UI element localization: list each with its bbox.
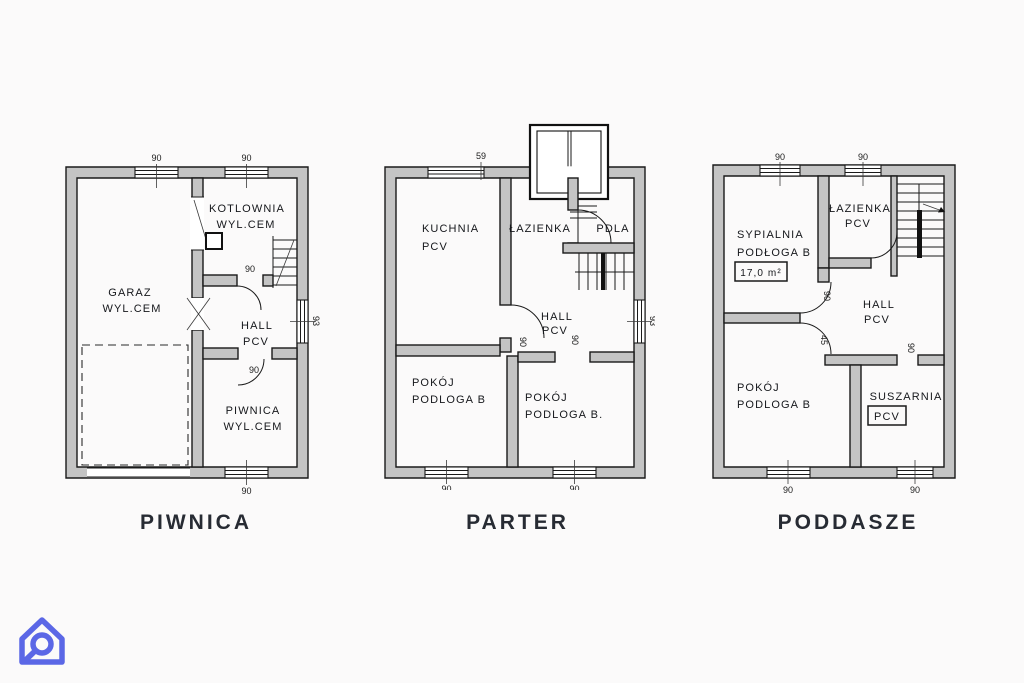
interior-wall [918,355,944,365]
boiler-symbol [206,233,222,249]
interior-wall [590,352,634,362]
room-label: PCV [845,218,871,230]
room-suszarnia: SUSZARNIA PCV [868,391,942,425]
room-sypialnia: SYPIALNIA PODŁOGA B 17,0 m² [735,229,811,281]
window: 90 [760,152,800,186]
interior-wall [850,365,861,467]
door-suszarnia: 90 [906,343,916,353]
svg-text:90: 90 [518,337,528,347]
floorplan-ground: 90 90 59 90 90 [380,110,655,490]
room-label: POKÓJ [412,376,455,389]
window: 90 [225,460,268,495]
room-kotlownia: KOTLOWNIA WYL.CEM [209,203,285,231]
room-label: WYL.CEM [102,303,161,315]
room-pokoj-left: POKÓJ PODLOGA B [412,376,486,406]
door-kotlownia: 90 [237,264,261,310]
room-label: PCV [243,336,269,348]
room-label: PCV [864,314,890,326]
room-label: PODLOGA B. [525,409,603,421]
stairs [273,236,297,288]
window: 93 [627,300,655,343]
svg-text:90: 90 [858,152,868,162]
room-label: POKÓJ [525,391,568,404]
floor-title-poddasze: PODDASZE [718,511,978,535]
door-piwnica: 90 [238,359,264,385]
stair-rail [601,253,605,290]
room-label: PIWNICA [226,405,281,417]
window: 90 [767,460,810,495]
svg-text:90: 90 [783,485,793,495]
interior-wall [518,352,555,362]
door-hall: 90 [511,305,544,347]
svg-text:90: 90 [441,484,451,490]
window-dim: 90 [241,153,251,163]
room-label: KOTLOWNIA [209,203,285,215]
room-pokoj: POKÓJ PODLOGA B [737,381,811,411]
interior-wall [818,268,829,282]
interior-wall [192,330,203,467]
interior-wall [203,348,238,359]
window: 90 [135,153,178,188]
room-label: PODŁOGA B [737,247,811,259]
window: 90 [553,460,596,490]
window-dim: 90 [241,486,251,495]
house-logo-icon [12,610,72,674]
room-label: ŁAZIENKA [509,223,571,235]
interior-wall [272,348,297,359]
room-label: POKÓJ [737,381,780,394]
room-label: PODLOGA B [412,394,486,406]
svg-text:90: 90 [245,264,255,274]
svg-text:90: 90 [906,343,916,353]
room-label: HALL [863,299,895,311]
svg-text:45: 45 [819,335,829,345]
svg-text:90: 90 [569,484,579,490]
interior-wall [500,178,511,305]
room-label: HALL [241,320,273,332]
room-label: HALL [541,311,573,323]
dim-top: 59 [476,151,486,161]
room-label: GARAZ [108,287,151,299]
interior-wall [818,176,829,268]
floorplan-attic: 90 45 90 90 90 90 [705,150,965,495]
door-garage-hall [187,298,210,330]
svg-text:90: 90 [910,485,920,495]
room-piwnica: PIWNICA WYL.CEM [223,405,282,433]
stairs [575,253,634,290]
room-label: WYL.CEM [216,219,275,231]
floor-title-parter: PARTER [380,511,655,535]
window: 93 [290,300,320,343]
room-lazienka: ŁAZIENKA PDLA [509,223,630,235]
floorplan-basement: 90 90 90 93 90 [60,140,320,495]
svg-text:93: 93 [648,316,655,326]
interior-wall [507,356,518,467]
room-label: ŁAZIENKA [829,203,891,215]
interior-wall [891,176,897,276]
interior-wall [203,275,237,286]
room-hall: HALL PCV [241,320,273,348]
svg-text:90: 90 [249,365,259,375]
door-pokoj: 45 [800,323,831,354]
room-label: PCV [542,325,568,337]
stairs [897,184,945,258]
room-kuchnia: KUCHNIA PCV [422,223,479,253]
interior-wall [724,313,800,323]
room-label: PCV [874,411,900,423]
room-label: PDLA [596,223,629,235]
room-hall: HALL PCV [863,299,895,326]
room-label: SUSZARNIA [870,391,943,403]
svg-text:90: 90 [775,152,785,162]
room-hall: HALL PCV [541,311,573,337]
floorplan-sheet: 90 90 90 93 90 [0,0,1024,683]
garage-gate [87,468,190,478]
interior-wall [500,338,511,352]
window-dim: 90 [151,153,161,163]
window-dim: 93 [311,316,320,326]
room-label: KUCHNIA [422,223,479,235]
room-label: SYPIALNIA [737,229,804,241]
window: 90 [897,460,933,495]
interior-wall [263,275,273,286]
interior-wall [563,243,634,253]
area-label: 17,0 m² [740,268,782,279]
interior-wall [396,345,500,356]
interior-wall [829,258,871,268]
door-sypialnia: 90 [800,282,832,313]
garage-dashed-area [82,345,188,465]
room-garaz: GARAZ WYL.CEM [102,287,161,315]
window: 59 [428,151,486,180]
svg-text:90: 90 [822,291,832,301]
door-pokoj-right: 90 [570,335,580,345]
room-label: PODLOGA B [737,399,811,411]
window: 90 [845,152,881,186]
interior-wall [825,355,897,365]
svg-text:90: 90 [570,335,580,345]
window: 90 [225,153,268,188]
room-label: PCV [422,241,448,253]
room-pokoj-right: POKÓJ PODLOGA B. [525,391,603,421]
window: 90 [425,460,468,490]
room-lazienka: ŁAZIENKA PCV [829,203,891,230]
floor-title-piwnica: PIWNICA [66,511,326,535]
interior-wall [568,178,578,210]
room-label: WYL.CEM [223,421,282,433]
